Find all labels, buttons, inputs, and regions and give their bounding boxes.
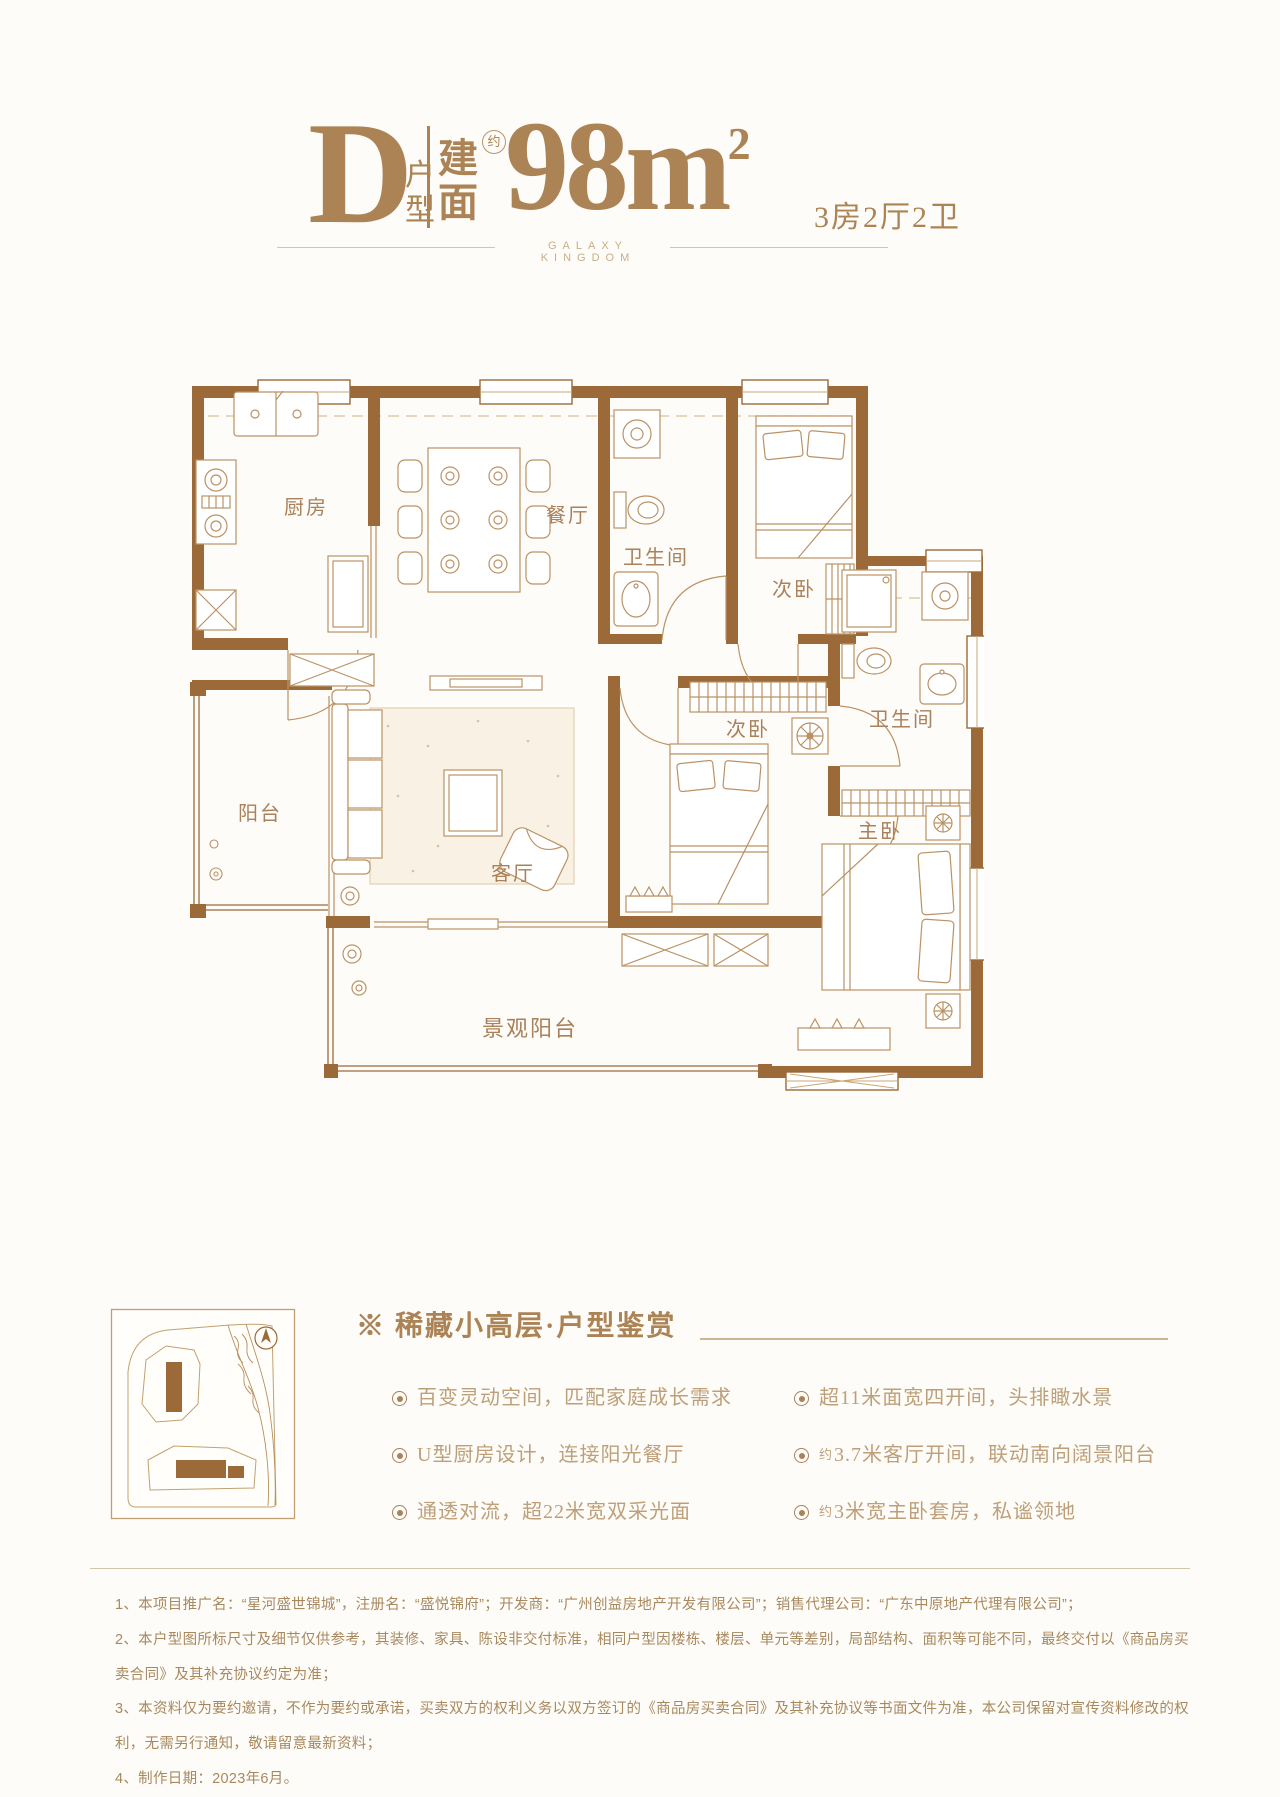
feature-item: 通透对流，超22米宽双采光面 [392,1500,691,1524]
view-balcony-items [343,934,768,995]
counter-icon [328,556,368,632]
room-label-dining: 餐厅 [546,504,590,527]
bedroom-top-furniture [756,416,854,634]
balcony-drains [210,840,222,880]
brand-rule-left [277,247,495,248]
feature-item: U型厨房设计，连接阳光餐厅 [392,1443,684,1467]
brand-text: GALAXY KINGDOM [503,240,673,264]
room-label-view-balcony: 景观阳台 [482,1016,578,1041]
area-superscript: 2 [728,118,751,169]
plan-type-char: 型 [405,196,435,226]
washer-icon [922,572,968,620]
basin-icon [920,664,964,704]
approx-badge: 约 [482,130,506,154]
feature-text: 通透对流，超22米宽双采光面 [417,1500,691,1524]
area-prefix-char: 建 [438,139,478,179]
flower-bullet-icon [392,1448,407,1463]
disclaimer-line: 4、制作日期：2023年6月。 [115,1762,1195,1797]
dresser-icon [798,1019,890,1050]
bed-icon [670,744,768,904]
room-label-bedroom-mid: 次卧 [726,718,770,741]
feature-text: 约3米宽主卧套房，私谧领地 [819,1500,1076,1524]
room-label-living: 客厅 [491,862,535,885]
brand-rule-right [670,247,888,248]
feature-text: U型厨房设计，连接阳光餐厅 [417,1443,684,1467]
plan-type-char: 户 [405,161,435,191]
side-stool-icon [341,887,359,905]
disclaimer-line: 1、本项目推广名：“星河盛世锦城”，注册名：“盛悦锦府”；开发商：“广州创益房地… [115,1588,1195,1623]
feature-item: 约3.7米客厅开间，联动南向阔景阳台 [794,1443,1156,1467]
disclaimer-line: 2、本户型图所标尺寸及细节仅供参考，其装修、家具、陈设非交付标准，相同户型因楼栋… [115,1623,1195,1693]
feature-text: 百变灵动空间，匹配家庭成长需求 [417,1386,732,1410]
room-label-bedroom-top: 次卧 [772,578,816,601]
living-furniture [332,676,574,905]
bed-icon [822,844,970,990]
flower-bullet-icon [392,1391,407,1406]
basin-icon [614,572,658,626]
plan-letter: D [308,100,413,246]
dining-set [398,448,550,592]
toilet-icon [614,492,664,528]
nightstand-icon [926,806,960,840]
fan-icon [792,718,828,754]
stove-icon [196,460,236,544]
area-prefix-char: 面 [438,183,478,223]
feature-text: 约3.7米客厅开间，联动南向阔景阳台 [819,1443,1156,1467]
feature-item: 超11米面宽四开间，头排瞰水景 [794,1386,1113,1410]
approx-prefix: 约 [819,1447,833,1462]
disclaimer-line: 3、本资料仅为要约邀请，不作为要约或承诺，买卖双方的权利义务以双方签订的《商品房… [115,1692,1195,1762]
footer-rule [90,1568,1190,1569]
sofa-icon [332,690,382,874]
cabinet-icon [196,590,236,630]
flower-bullet-icon [794,1505,809,1520]
flower-bullet-icon [392,1505,407,1520]
feature-text: 超11米面宽四开间，头排瞰水景 [819,1386,1113,1410]
washer-icon [614,410,660,458]
feature-item: 约3米宽主卧套房，私谧领地 [794,1500,1076,1524]
stool-icon [343,945,366,995]
area-value: 98m2 [505,102,751,230]
room-label-kitchen: 厨房 [284,496,328,519]
bath-top-fixtures [614,410,664,626]
flower-bullet-icon [794,1448,809,1463]
cabinet-icon [622,934,768,966]
room-label-master: 主卧 [858,820,902,843]
feature-item: 百变灵动空间，匹配家庭成长需求 [392,1386,732,1410]
site-plan [110,1308,296,1520]
tv-stand-icon [430,676,542,690]
features-title-rule [700,1338,1168,1340]
wardrobe-icon [690,682,826,712]
flower-bullet-icon [794,1391,809,1406]
room-label-bath-top: 卫生间 [623,546,689,569]
shower-icon [842,570,896,632]
approx-prefix: 约 [819,1504,833,1519]
layout-summary: 3房2厅2卫 [814,192,961,236]
planter-icon [626,887,672,912]
floor-plan: 厨房 餐厅 卫生间 次卧 阳台 客厅 次卧 主卧 卫生间 景观阳台 [178,376,984,1100]
room-label-bath-right: 卫生间 [869,708,935,731]
room-label-balcony: 阳台 [238,802,282,825]
toilet-icon [842,644,891,678]
bedroom-mid-furniture [626,682,828,912]
compass-icon [255,1327,277,1349]
bed-icon [756,416,852,558]
features-title: ※ 稀藏小高层·户型鉴赏 [356,1304,676,1344]
header-divider [427,126,430,228]
coffee-table-icon [444,770,502,836]
hall-cabinet-icon [290,654,374,686]
disclaimer: 1、本项目推广名：“星河盛世锦城”，注册名：“盛悦锦府”；开发商：“广州创益房地… [115,1588,1195,1797]
sink-icon [234,391,318,436]
nightstand-icon [926,994,960,1028]
